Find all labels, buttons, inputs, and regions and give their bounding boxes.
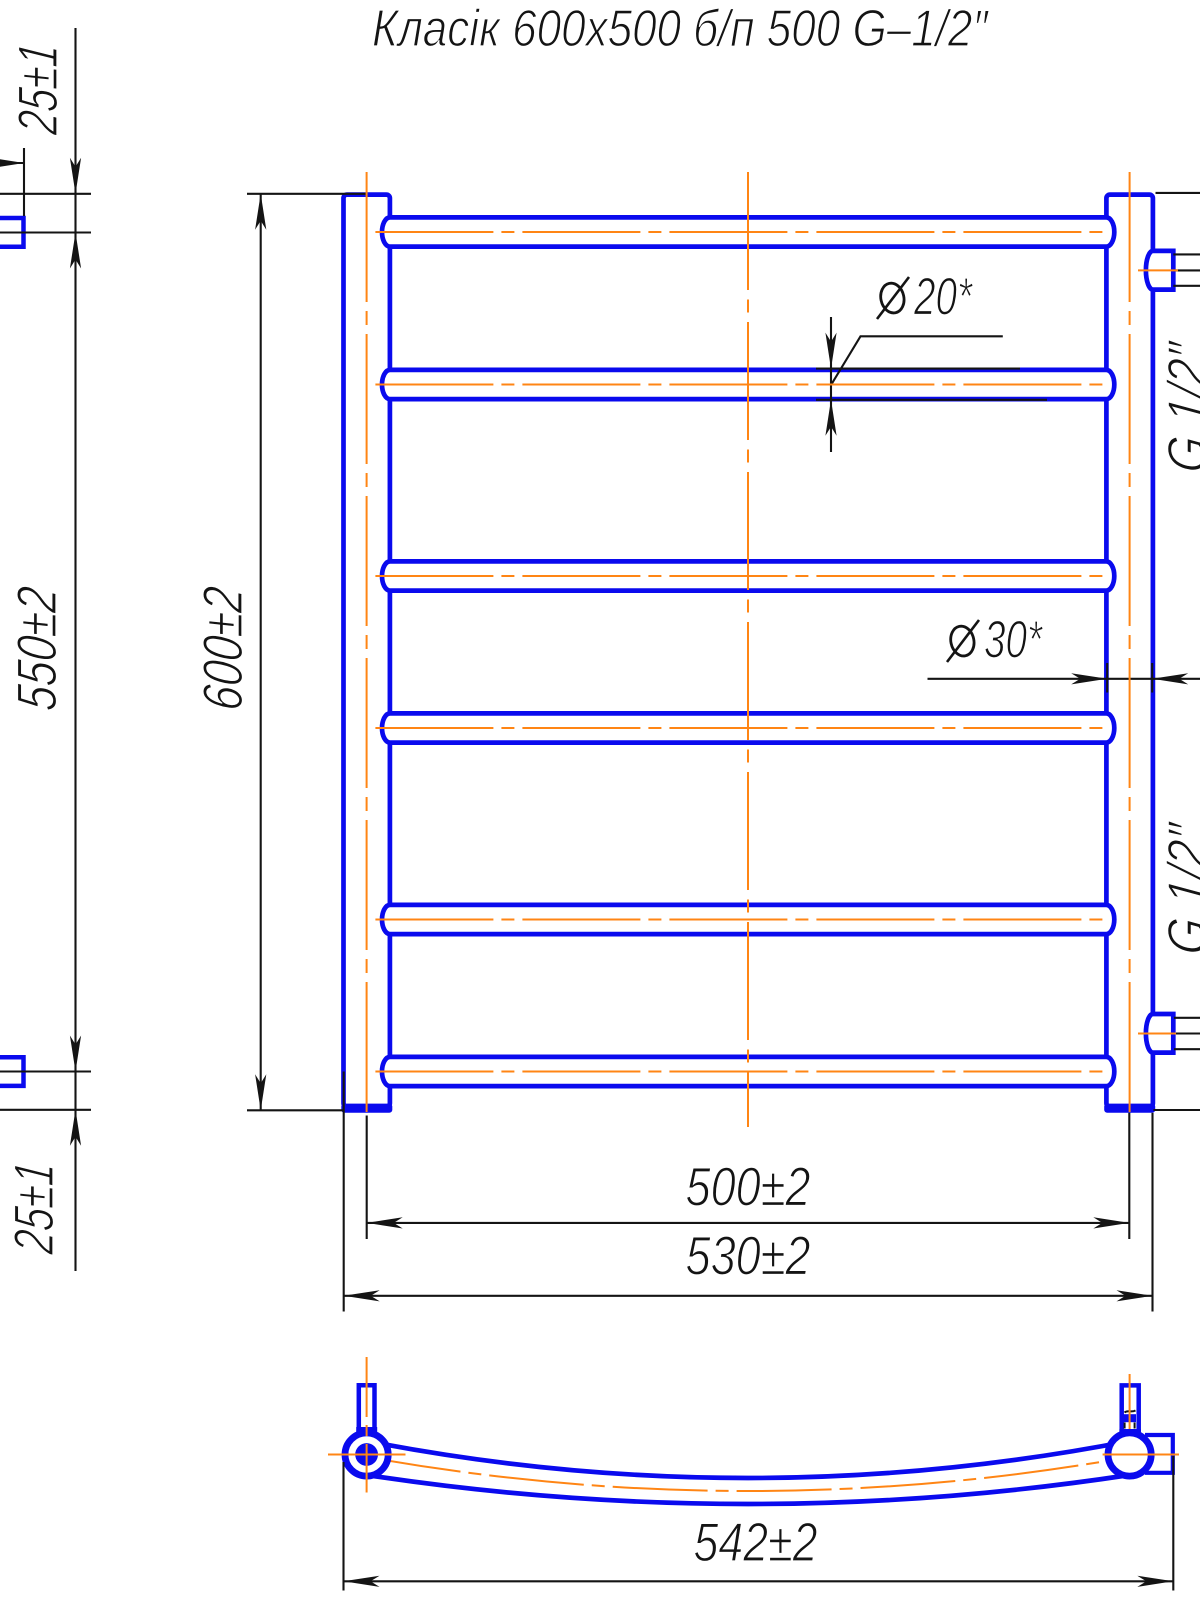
svg-text:500±2: 500±2 — [686, 1156, 811, 1218]
svg-text:542±2: 542±2 — [694, 1511, 818, 1573]
svg-text:600±2: 600±2 — [191, 584, 254, 714]
svg-text:30*: 30* — [984, 611, 1044, 670]
svg-text:Класік 600х500 б/п 500 G–1/2″: Класік 600х500 б/п 500 G–1/2″ — [372, 0, 989, 58]
svg-text:530±2: 530±2 — [686, 1225, 811, 1287]
svg-text:25±1: 25±1 — [2, 1159, 65, 1257]
svg-text:20*: 20* — [913, 268, 973, 327]
svg-text:25±1: 25±1 — [6, 40, 69, 137]
svg-text:G 1/2″: G 1/2″ — [1156, 819, 1200, 958]
svg-text:G 1/2″: G 1/2″ — [1156, 338, 1200, 476]
svg-text:550±2: 550±2 — [5, 584, 68, 714]
